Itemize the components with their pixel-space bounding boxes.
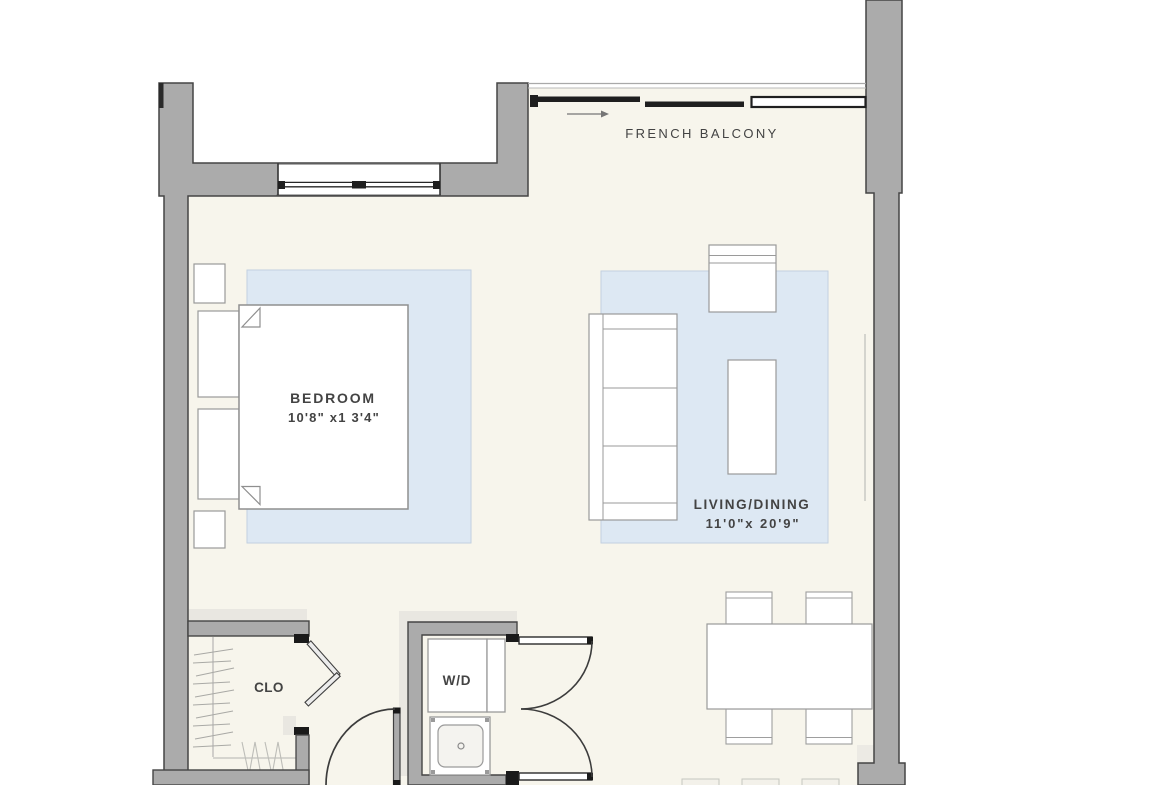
svg-text:FRENCH BALCONY: FRENCH BALCONY [625,126,779,141]
svg-text:CLO: CLO [254,680,284,695]
svg-text:BEDROOM: BEDROOM [290,390,376,406]
svg-text:11'0"x 20'9": 11'0"x 20'9" [706,516,801,531]
svg-text:10'8" x1 3'4": 10'8" x1 3'4" [288,410,380,425]
svg-text:W/D: W/D [443,673,472,688]
svg-text:LIVING/DINING: LIVING/DINING [694,497,811,512]
